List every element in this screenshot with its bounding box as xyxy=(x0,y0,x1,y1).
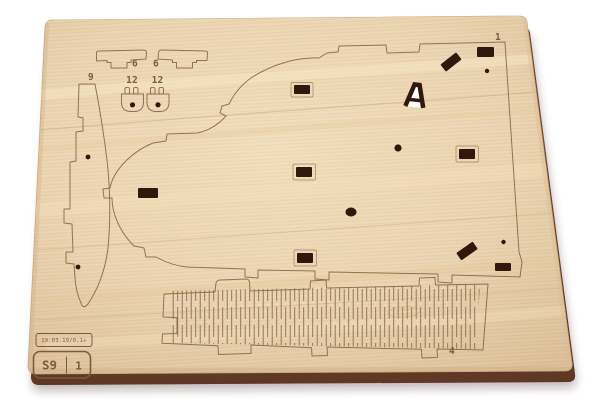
pedal-hole xyxy=(130,102,135,107)
rib-hole xyxy=(86,155,91,160)
cut-slot xyxy=(138,188,158,198)
wood-grain xyxy=(20,10,590,410)
cut-slot xyxy=(297,253,313,263)
cut-slot xyxy=(296,167,312,177)
sheet-code-label: S9 xyxy=(42,358,57,373)
piece-4-label: 4 xyxy=(449,346,455,357)
piece-12-left-label: 12 xyxy=(126,75,138,86)
cut-hole xyxy=(501,240,505,244)
rib-hole xyxy=(76,265,81,270)
piece-6-right-label: 6 xyxy=(153,59,159,70)
piece-12-right-label: 12 xyxy=(152,75,164,86)
pedal-hole xyxy=(155,102,160,107)
cut-slot xyxy=(294,85,310,94)
piece-9-label: 9 xyxy=(88,72,94,83)
plywood-sheet-photo: 1 4 6 6 9 12 12 19.03.19/0,1✳ S9 1 xyxy=(0,0,600,413)
cut-hole xyxy=(485,69,489,73)
cut-slot xyxy=(459,149,475,159)
piece-1-label: 1 xyxy=(495,32,501,43)
piece-6-left-label: 6 xyxy=(132,59,138,70)
stamp-info-text: 19.03.19/0,1✳ xyxy=(41,338,87,344)
cut-hole xyxy=(346,208,357,217)
cut-slot xyxy=(477,47,494,57)
sheet-number-label: 1 xyxy=(75,360,82,373)
living-hinge-pattern xyxy=(170,284,480,349)
cut-hole xyxy=(394,144,401,151)
cut-slot xyxy=(495,263,511,271)
